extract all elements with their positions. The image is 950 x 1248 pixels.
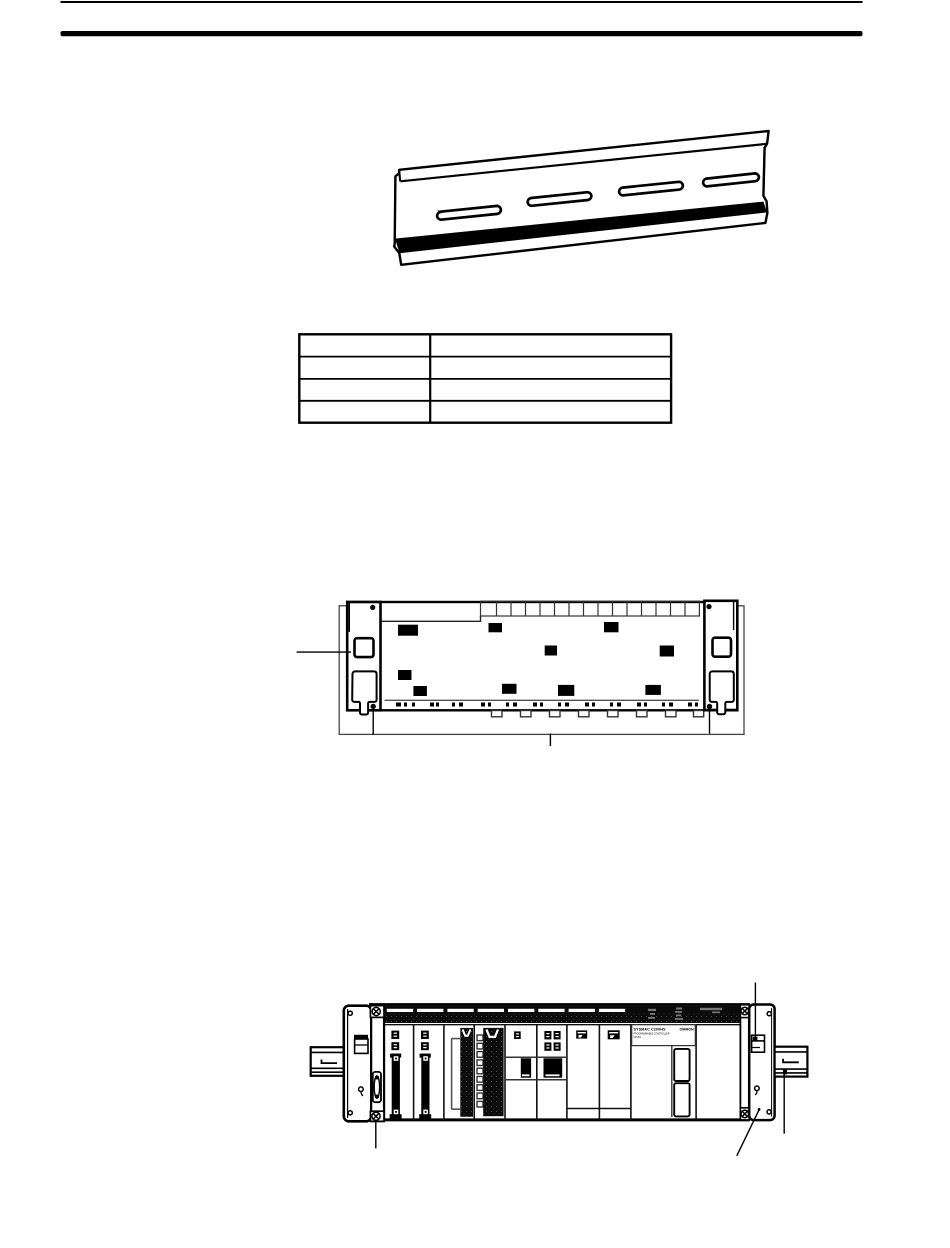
svg-text:PROGRAMMABLE CONTROLLER: PROGRAMMABLE CONTROLLER xyxy=(634,1033,670,1036)
svg-text:CPU01: CPU01 xyxy=(634,1037,642,1039)
svg-text:OMRON: OMRON xyxy=(680,1027,694,1031)
svg-text:SYSMAC C200HS: SYSMAC C200HS xyxy=(634,1027,666,1031)
